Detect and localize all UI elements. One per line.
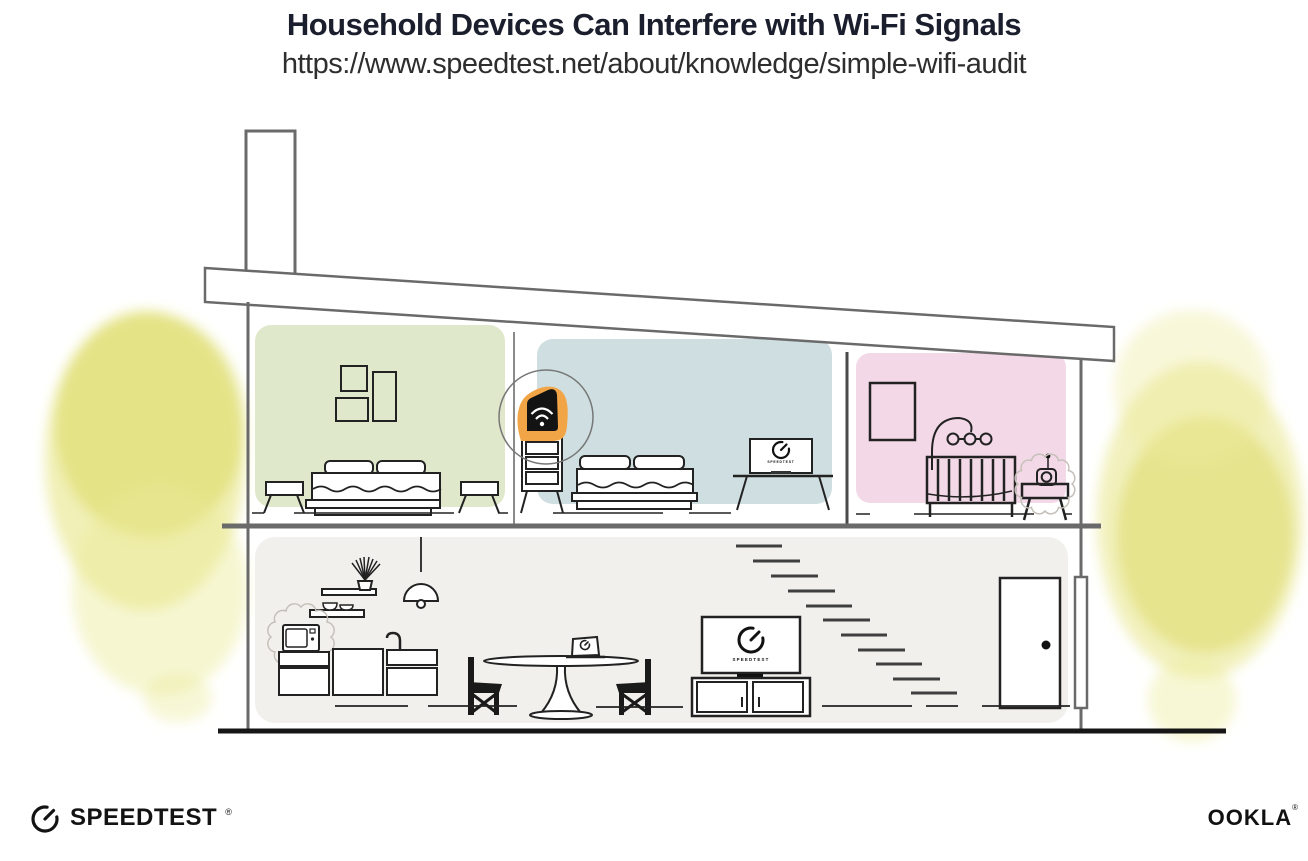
tv-console-icon	[692, 678, 810, 716]
speedtest-trademark: ®	[225, 807, 232, 817]
downspout	[1075, 577, 1087, 708]
door-icon	[1000, 578, 1060, 708]
speedtest-logo: SPEEDTEST ®	[28, 801, 232, 835]
bed-icon	[306, 461, 441, 515]
ookla-wordmark: OOKLA	[1208, 805, 1292, 831]
ookla-trademark: ®	[1292, 803, 1298, 812]
microwave-icon	[283, 625, 319, 651]
ookla-logo: OOKLA ®	[1208, 805, 1298, 831]
monitor-speedtest-icon: SPEEDTEST	[750, 439, 812, 474]
tv-screen-label: SPEEDTEST	[733, 657, 770, 662]
speedtest-wordmark: SPEEDTEST	[70, 804, 217, 832]
monitor-screen-label: SPEEDTEST	[767, 460, 794, 464]
wifi-router-icon	[518, 387, 568, 441]
tv-speedtest-icon: SPEEDTEST	[702, 617, 800, 677]
door-knob	[1042, 641, 1051, 650]
bed-icon	[572, 456, 697, 509]
house-cross-section-illustration: SPEEDTEST	[0, 0, 1308, 861]
watercolor-tree-right	[1097, 310, 1303, 742]
watercolor-tree-left	[45, 310, 248, 722]
speedtest-gauge-icon	[28, 801, 62, 835]
